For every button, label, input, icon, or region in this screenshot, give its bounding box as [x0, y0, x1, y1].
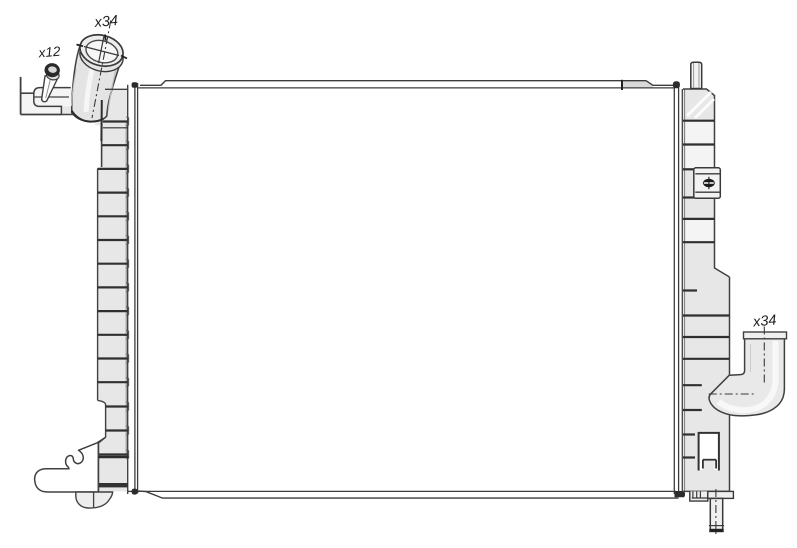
svg-text:x12: x12 [37, 44, 61, 61]
svg-text:x34: x34 [93, 13, 119, 31]
svg-text:x34: x34 [751, 313, 777, 331]
